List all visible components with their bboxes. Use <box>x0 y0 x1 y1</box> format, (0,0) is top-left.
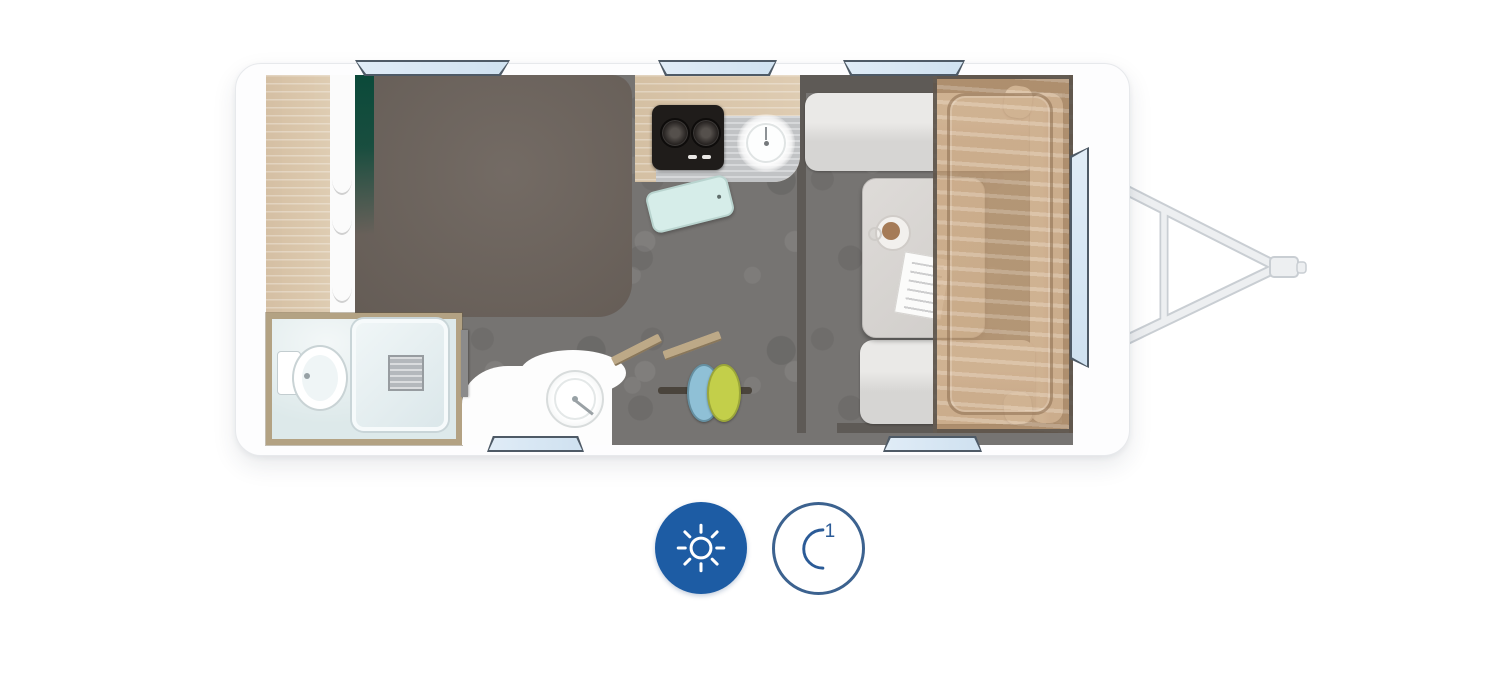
cup-handle <box>868 227 882 241</box>
window-glass <box>660 62 775 74</box>
stove-burner <box>660 118 690 148</box>
sun-icon <box>673 520 729 576</box>
shelf-divider <box>332 203 352 235</box>
stove-knob <box>688 155 697 159</box>
shower-tray <box>352 319 448 431</box>
night-bed-count-badge: 1 <box>825 522 836 541</box>
kitchen-counter <box>635 75 800 182</box>
window-top-front <box>355 60 510 76</box>
bedside-shelf <box>330 75 355 317</box>
bathroom-door <box>461 330 468 397</box>
window-top-rear <box>843 60 965 76</box>
window-bottom-rear <box>883 436 982 452</box>
stove-burner <box>691 118 721 148</box>
wardrobe <box>266 75 332 313</box>
drop-down-bed-outline <box>947 93 1053 415</box>
coffee <box>882 222 900 240</box>
kitchen-faucet-arm <box>765 127 767 140</box>
drop-down-bed-overlay <box>933 75 1073 433</box>
double-bed <box>355 75 632 317</box>
night-mode-button[interactable]: 1 <box>772 502 865 595</box>
shower-drain <box>388 355 424 391</box>
tow-hitch <box>1120 178 1310 360</box>
window-glass <box>845 62 963 74</box>
shelf-divider <box>332 163 352 195</box>
stool-green <box>707 364 741 422</box>
stove <box>652 105 724 170</box>
kitchen-sink <box>737 114 795 172</box>
floorplan-canvas: 1 <box>0 0 1500 673</box>
window-top-middle <box>658 60 777 76</box>
toilet-flush <box>304 373 310 379</box>
coffee-cup <box>875 215 911 251</box>
washbasin <box>546 370 604 428</box>
window-bottom-front <box>487 436 584 452</box>
window-glass <box>357 62 508 74</box>
window-glass <box>1072 149 1087 366</box>
shelf-divider <box>332 271 352 303</box>
stove-knob <box>702 155 711 159</box>
hitch-coupler <box>1270 257 1298 277</box>
day-mode-button[interactable] <box>655 502 747 594</box>
headboard-panel <box>355 75 374 235</box>
toilet <box>292 345 348 411</box>
window-side-right <box>1070 147 1089 368</box>
window-glass <box>489 438 582 450</box>
window-glass <box>885 438 980 450</box>
bathroom <box>266 313 462 445</box>
board-hole <box>717 194 722 199</box>
kitchen-faucet <box>764 141 769 146</box>
